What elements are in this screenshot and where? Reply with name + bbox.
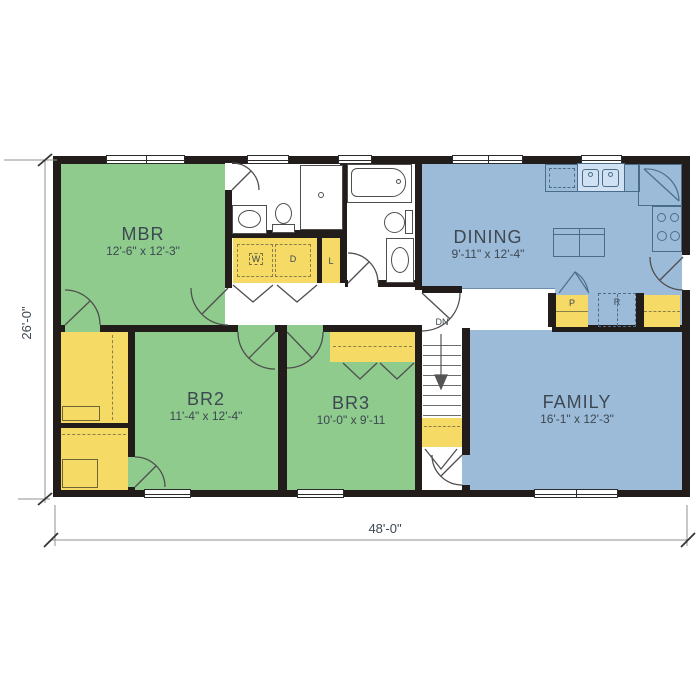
door-leaf-br3 [287,332,312,358]
door-leaf-stairs [422,293,450,319]
bifold-br3-closet [343,363,414,379]
annotation-overlay [0,0,700,700]
door-leaf-br2 [249,332,275,358]
floor-plan: P R W D L DN MBR 12'-6" x 12'-3" DINING … [0,0,700,700]
door-leaf-masterbath [232,171,251,190]
stair-down-arrow-head [435,375,447,389]
bifold-understair [425,449,457,469]
door-leaf-side-entry [660,257,683,280]
door-leaf-mbr-closet [65,301,90,325]
door-leaf-br2-closet [135,466,156,487]
pantry-door-tent [559,272,589,293]
door-leaf-mbr [202,288,228,314]
door-leaf-hallbath [348,262,369,283]
bifold-washer-dryer [233,285,317,302]
